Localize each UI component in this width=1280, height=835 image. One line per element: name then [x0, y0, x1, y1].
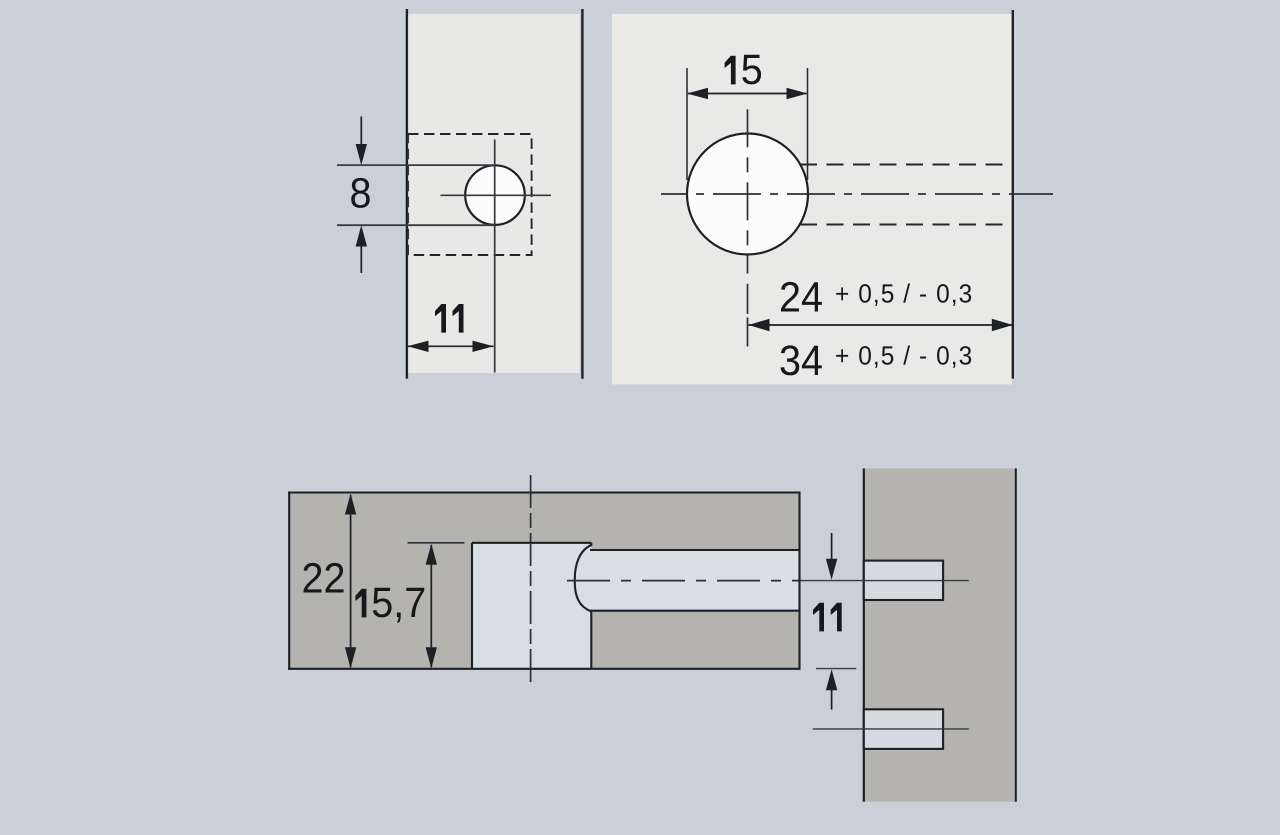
svg-text:22: 22: [302, 555, 346, 602]
svg-text:+ 0,5 / - 0,3: + 0,5 / - 0,3: [835, 279, 973, 309]
svg-text:5,7: 5,7: [371, 580, 426, 627]
svg-text:34: 34: [779, 338, 823, 385]
svg-text:24: 24: [779, 275, 823, 322]
svg-text:8: 8: [350, 171, 372, 218]
svg-text:5: 5: [741, 47, 763, 94]
svg-text:+ 0,5 / - 0,3: + 0,5 / - 0,3: [835, 340, 973, 370]
